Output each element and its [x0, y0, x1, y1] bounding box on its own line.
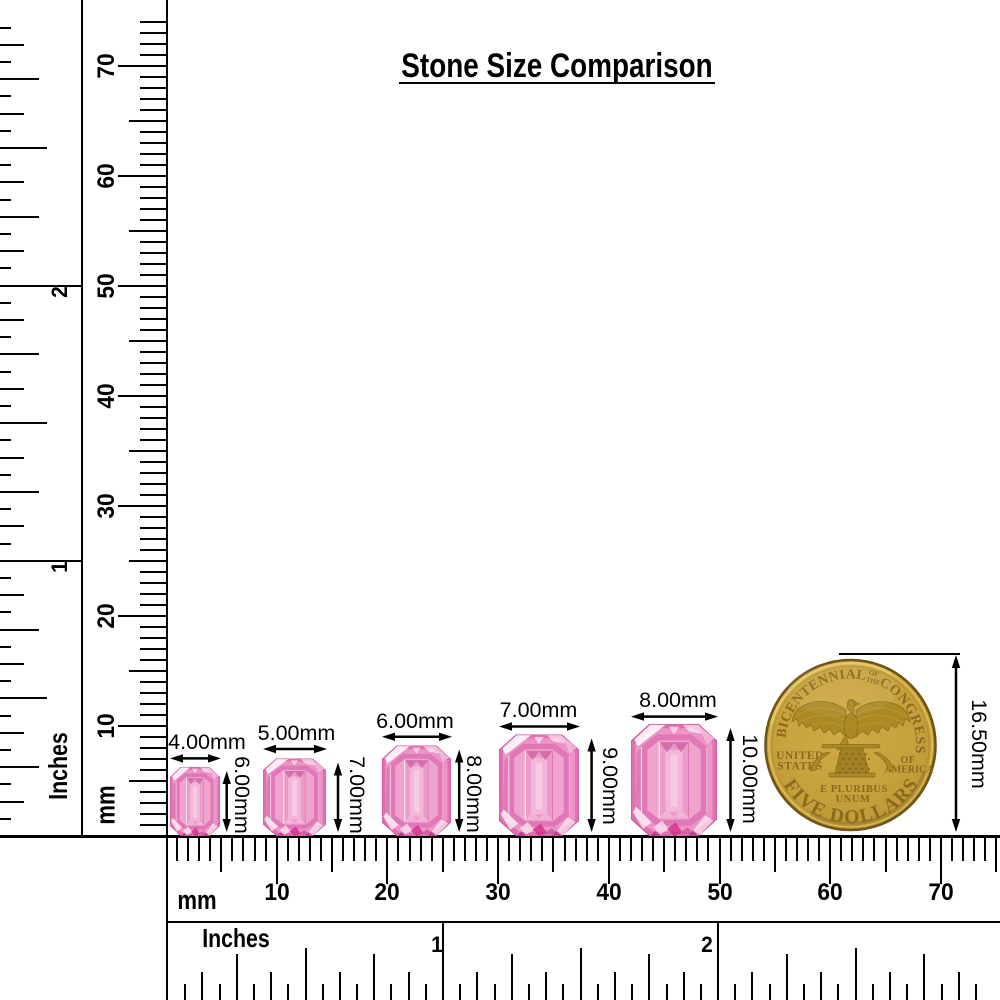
- svg-text:UNUM: UNUM: [836, 794, 871, 805]
